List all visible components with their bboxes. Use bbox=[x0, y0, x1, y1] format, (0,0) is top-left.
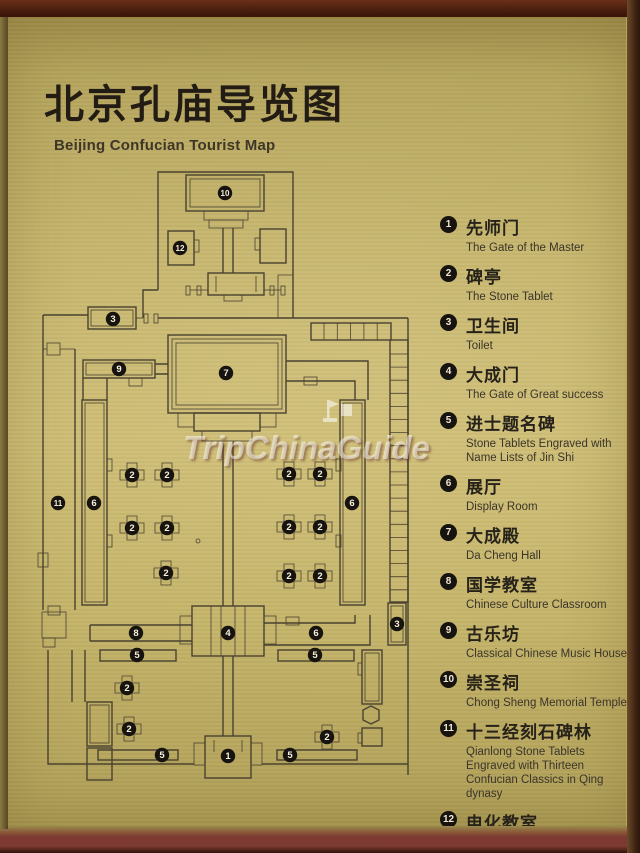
map-walls bbox=[38, 172, 408, 780]
temple-floor-plan-map: 1012397116622222222222846552225513 bbox=[28, 163, 430, 781]
map-marker: 2 bbox=[320, 730, 334, 744]
map-marker: 6 bbox=[345, 496, 359, 510]
svg-text:5: 5 bbox=[134, 650, 140, 661]
legend-item: 2 碑亭 The Stone Tablet bbox=[440, 263, 632, 304]
svg-text:4: 4 bbox=[225, 628, 231, 639]
map-marker: 2 bbox=[282, 569, 296, 583]
map-marker: 5 bbox=[283, 748, 297, 762]
legend-label-en: Display Room bbox=[466, 500, 538, 514]
sign-photo: 北京孔庙导览图 Beijing Confucian Tourist Map bbox=[0, 0, 640, 853]
legend-label-zh: 古乐坊 bbox=[466, 620, 627, 645]
map-marker: 2 bbox=[313, 520, 327, 534]
legend-item: 9 古乐坊 Classical Chinese Music House bbox=[440, 620, 632, 661]
legend-label-zh: 大成殿 bbox=[466, 522, 541, 547]
legend-number-badge: 9 bbox=[440, 622, 457, 639]
svg-text:2: 2 bbox=[317, 571, 322, 582]
svg-text:5: 5 bbox=[159, 750, 165, 761]
legend-label-en: Da Cheng Hall bbox=[466, 549, 541, 563]
legend-item: 5 进士题名碑 Stone Tablets Engraved with Name… bbox=[440, 410, 632, 465]
map-marker: 2 bbox=[120, 681, 134, 695]
legend-label-zh: 崇圣祠 bbox=[466, 669, 627, 694]
legend-label-zh: 大成门 bbox=[466, 361, 603, 386]
svg-text:7: 7 bbox=[223, 368, 228, 379]
photo-frame-left bbox=[0, 17, 8, 829]
legend-item: 10 崇圣祠 Chong Sheng Memorial Temple bbox=[440, 669, 632, 710]
map-marker: 6 bbox=[309, 626, 323, 640]
legend-label-en: Qianlong Stone Tablets Engraved with Thi… bbox=[466, 745, 632, 801]
legend-number-badge: 10 bbox=[440, 671, 457, 688]
svg-text:2: 2 bbox=[163, 568, 168, 579]
legend-number-badge: 11 bbox=[440, 720, 457, 737]
map-marker: 2 bbox=[313, 467, 327, 481]
legend-number-badge: 8 bbox=[440, 573, 457, 590]
legend-item: 4 大成门 The Gate of Great success bbox=[440, 361, 632, 402]
svg-text:5: 5 bbox=[312, 650, 318, 661]
legend-item: 1 先师门 The Gate of the Master bbox=[440, 214, 632, 255]
legend-label-zh: 展厅 bbox=[466, 473, 538, 498]
ladder-corridor-right bbox=[390, 340, 408, 602]
map-marker: 2 bbox=[313, 569, 327, 583]
svg-text:2: 2 bbox=[129, 470, 134, 481]
map-marker: 11 bbox=[51, 496, 65, 510]
map-marker: 2 bbox=[282, 520, 296, 534]
map-marker: 4 bbox=[221, 626, 235, 640]
map-marker: 10 bbox=[218, 186, 232, 200]
map-marker: 3 bbox=[106, 312, 120, 326]
title-english: Beijing Confucian Tourist Map bbox=[54, 137, 345, 154]
map-marker: 2 bbox=[160, 468, 174, 482]
map-marker: 5 bbox=[155, 748, 169, 762]
legend-label-en: The Gate of Great success bbox=[466, 388, 603, 402]
legend-item: 7 大成殿 Da Cheng Hall bbox=[440, 522, 632, 563]
map-marker: 3 bbox=[390, 617, 404, 631]
legend-number-badge: 4 bbox=[440, 363, 457, 380]
map-marker: 8 bbox=[129, 626, 143, 640]
svg-text:6: 6 bbox=[91, 498, 96, 509]
legend-item: 3 卫生间 Toilet bbox=[440, 312, 632, 353]
legend-number-badge: 5 bbox=[440, 412, 457, 429]
svg-text:2: 2 bbox=[286, 522, 291, 533]
svg-text:1: 1 bbox=[225, 751, 231, 762]
legend-number-badge: 2 bbox=[440, 265, 457, 282]
legend-number-badge: 1 bbox=[440, 216, 457, 233]
legend-label-zh: 先师门 bbox=[466, 214, 584, 239]
legend-label-en: The Gate of the Master bbox=[466, 241, 584, 255]
legend-label-en: Chong Sheng Memorial Temple bbox=[466, 696, 627, 710]
map-marker: 2 bbox=[282, 467, 296, 481]
svg-text:2: 2 bbox=[124, 683, 129, 694]
svg-text:2: 2 bbox=[286, 469, 291, 480]
map-marker: 2 bbox=[159, 566, 173, 580]
legend-item: 6 展厅 Display Room bbox=[440, 473, 632, 514]
legend: 1 先师门 The Gate of the Master 2 碑亭 The St… bbox=[440, 214, 632, 853]
map-marker: 2 bbox=[122, 722, 136, 736]
title-chinese: 北京孔庙导览图 bbox=[44, 72, 345, 130]
page-title: 北京孔庙导览图 Beijing Confucian Tourist Map bbox=[44, 72, 345, 154]
svg-text:9: 9 bbox=[116, 364, 121, 375]
svg-text:2: 2 bbox=[286, 571, 291, 582]
legend-label-en: The Stone Tablet bbox=[466, 290, 553, 304]
legend-label-zh: 碑亭 bbox=[466, 263, 553, 288]
map-marker: 9 bbox=[112, 362, 126, 376]
map-marker: 5 bbox=[130, 648, 144, 662]
legend-label-en: Chinese Culture Classroom bbox=[466, 598, 607, 612]
svg-text:2: 2 bbox=[126, 724, 131, 735]
svg-text:2: 2 bbox=[324, 732, 329, 743]
map-marker: 12 bbox=[173, 241, 187, 255]
map-marker: 6 bbox=[87, 496, 101, 510]
legend-label-en: Toilet bbox=[466, 339, 520, 353]
map-marker: 2 bbox=[125, 521, 139, 535]
legend-number-badge: 6 bbox=[440, 475, 457, 492]
svg-text:12: 12 bbox=[176, 244, 185, 253]
svg-text:8: 8 bbox=[133, 628, 138, 639]
photo-frame-right bbox=[627, 0, 640, 853]
svg-text:6: 6 bbox=[349, 498, 354, 509]
map-marker: 7 bbox=[219, 366, 233, 380]
legend-label-zh: 进士题名碑 bbox=[466, 410, 632, 435]
legend-number-badge: 7 bbox=[440, 524, 457, 541]
svg-text:2: 2 bbox=[164, 523, 169, 534]
map-marker: 2 bbox=[160, 521, 174, 535]
svg-text:5: 5 bbox=[287, 750, 293, 761]
legend-item: 11 十三经刻石碑林 Qianlong Stone Tablets Engrav… bbox=[440, 718, 632, 801]
svg-text:6: 6 bbox=[313, 628, 318, 639]
legend-number-badge: 3 bbox=[440, 314, 457, 331]
photo-frame-top bbox=[0, 0, 640, 17]
floor-plan-svg: 1012397116622222222222846552225513 bbox=[28, 163, 430, 781]
map-marker: 2 bbox=[125, 468, 139, 482]
svg-text:11: 11 bbox=[54, 499, 63, 508]
svg-text:3: 3 bbox=[110, 314, 115, 325]
svg-text:2: 2 bbox=[129, 523, 134, 534]
map-marker: 5 bbox=[308, 648, 322, 662]
legend-item: 8 国学教室 Chinese Culture Classroom bbox=[440, 571, 632, 612]
legend-label-zh: 卫生间 bbox=[466, 312, 520, 337]
ladder-rungs bbox=[324, 323, 408, 590]
legend-label-zh: 国学教室 bbox=[466, 571, 607, 596]
svg-text:2: 2 bbox=[317, 522, 322, 533]
svg-text:2: 2 bbox=[164, 470, 169, 481]
svg-text:2: 2 bbox=[317, 469, 322, 480]
photo-frame-bottom bbox=[0, 826, 640, 853]
legend-label-en: Classical Chinese Music House bbox=[466, 647, 627, 661]
legend-label-zh: 十三经刻石碑林 bbox=[466, 718, 632, 743]
svg-text:3: 3 bbox=[394, 619, 399, 630]
map-marker: 1 bbox=[221, 749, 235, 763]
svg-text:10: 10 bbox=[221, 189, 230, 198]
legend-label-en: Stone Tablets Engraved with Name Lists o… bbox=[466, 437, 632, 465]
